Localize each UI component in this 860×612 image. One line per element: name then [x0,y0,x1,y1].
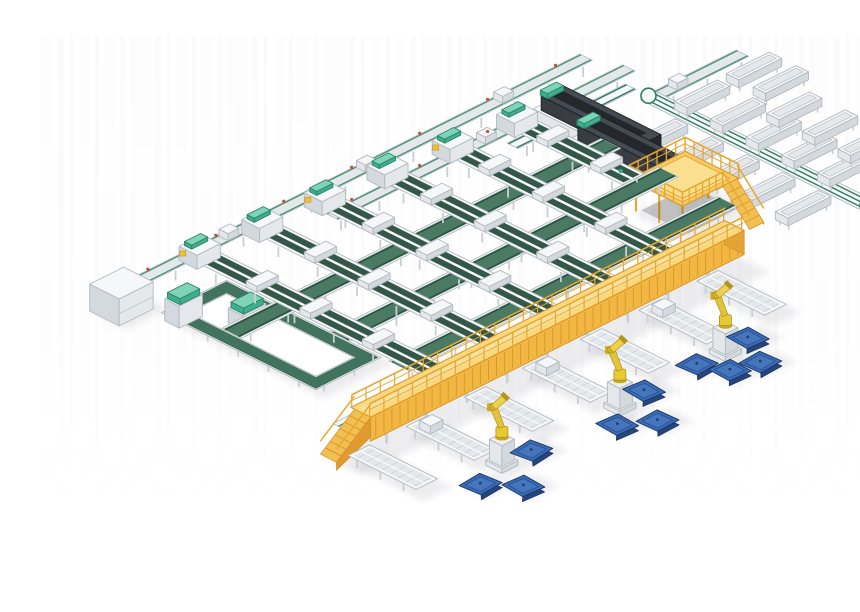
factory-isometric-render [40,16,860,596]
render-canvas [40,16,860,596]
